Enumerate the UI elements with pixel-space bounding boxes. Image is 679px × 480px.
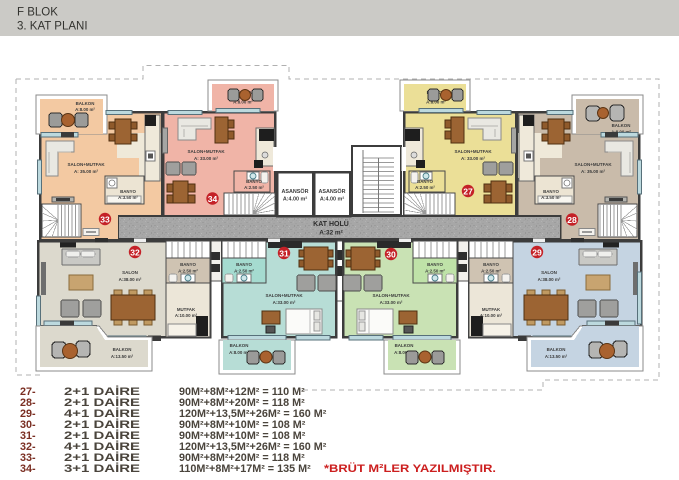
- svg-text:32: 32: [130, 248, 140, 258]
- svg-text:33: 33: [100, 215, 110, 225]
- svg-text:27: 27: [463, 187, 473, 197]
- svg-text:30: 30: [386, 250, 396, 260]
- svg-text:F BLOK: F BLOK: [17, 7, 58, 19]
- svg-text:*BRÜT M²LER YAZILMIŞTIR.: *BRÜT M²LER YAZILMIŞTIR.: [324, 462, 496, 475]
- svg-text:ASANSÖR: ASANSÖR: [319, 188, 346, 195]
- svg-text:BALKON: BALKON: [547, 347, 566, 352]
- svg-text:A:4.00 m²: A:4.00 m²: [320, 197, 344, 203]
- svg-text:A:38.00 m²: A:38.00 m²: [538, 277, 561, 282]
- svg-text:A:3.50 m²: A:3.50 m²: [118, 195, 138, 200]
- svg-text:A:8.00 m²: A:8.00 m²: [229, 350, 249, 355]
- svg-text:A:2.50 m²: A:2.50 m²: [244, 185, 264, 190]
- svg-text:BANYO: BANYO: [236, 262, 252, 267]
- svg-text:A:33.00 m²: A:33.00 m²: [380, 300, 403, 305]
- svg-text:SALON+MUTFAK: SALON+MUTFAK: [187, 149, 225, 154]
- svg-text:BANYO: BANYO: [246, 179, 262, 184]
- svg-text:A: 33.00 m²: A: 33.00 m²: [194, 156, 219, 161]
- svg-text:A:10.00 m²: A:10.00 m²: [175, 313, 198, 318]
- svg-text:BALKON: BALKON: [230, 343, 249, 348]
- svg-text:110M²+8M²+17M² = 135 M²: 110M²+8M²+17M² = 135 M²: [179, 463, 311, 475]
- svg-text:A:33.00 m²: A:33.00 m²: [273, 300, 296, 305]
- svg-text:SALON: SALON: [541, 270, 557, 275]
- svg-text:BANYO: BANYO: [543, 189, 559, 194]
- svg-text:34-: 34-: [20, 463, 36, 475]
- svg-text:MUTFAK: MUTFAK: [177, 307, 196, 312]
- svg-text:BANYO: BANYO: [120, 189, 136, 194]
- svg-text:A: 33.00 m²: A: 33.00 m²: [461, 156, 486, 161]
- svg-text:A:13.50 m²: A:13.50 m²: [111, 354, 134, 359]
- svg-text:A: 35.00 m²: A: 35.00 m²: [581, 169, 606, 174]
- svg-text:SALON+MUTFAK: SALON+MUTFAK: [574, 162, 612, 167]
- svg-text:SALON+MUTFAK: SALON+MUTFAK: [265, 293, 303, 298]
- svg-text:31: 31: [279, 249, 289, 259]
- svg-text:A:2.50 m²: A:2.50 m²: [415, 185, 435, 190]
- svg-text:A:32 m²: A:32 m²: [319, 230, 342, 237]
- svg-text:3+1 DAİRE: 3+1 DAİRE: [64, 462, 140, 475]
- svg-text:A:13.50 m²: A:13.50 m²: [545, 354, 568, 359]
- svg-text:A:3.50 m²: A:3.50 m²: [541, 195, 561, 200]
- svg-text:SALON: SALON: [122, 270, 138, 275]
- svg-text:ASANSÖR: ASANSÖR: [282, 188, 309, 195]
- svg-text:28: 28: [567, 215, 577, 225]
- svg-text:A:10.00 m²: A:10.00 m²: [480, 313, 503, 318]
- svg-text:SALON+MUTFAK: SALON+MUTFAK: [372, 293, 410, 298]
- svg-text:A:2.50 m²: A:2.50 m²: [425, 269, 445, 274]
- svg-text:BANYO: BANYO: [427, 262, 443, 267]
- svg-text:A: 35.00 m²: A: 35.00 m²: [74, 169, 99, 174]
- svg-text:BALKON: BALKON: [395, 343, 414, 348]
- svg-text:29: 29: [532, 248, 542, 258]
- svg-text:BALKON: BALKON: [612, 123, 631, 128]
- svg-text:A:2.50 m²: A:2.50 m²: [481, 269, 501, 274]
- svg-text:BANYO: BANYO: [417, 179, 433, 184]
- svg-text:MUTFAK: MUTFAK: [482, 307, 501, 312]
- svg-text:A:4.00 m²: A:4.00 m²: [283, 197, 307, 203]
- svg-text:KAT HOLÜ: KAT HOLÜ: [313, 219, 349, 228]
- svg-text:BALKON: BALKON: [113, 347, 132, 352]
- svg-text:3. KAT PLANI: 3. KAT PLANI: [17, 21, 88, 33]
- svg-text:SALON+MUTFAK: SALON+MUTFAK: [454, 149, 492, 154]
- svg-text:BALKON: BALKON: [76, 101, 95, 106]
- svg-text:34: 34: [208, 194, 218, 204]
- svg-text:SALON+MUTFAK: SALON+MUTFAK: [67, 162, 105, 167]
- svg-text:A:8.00 m²: A:8.00 m²: [75, 107, 95, 112]
- svg-text:BANYO: BANYO: [180, 262, 196, 267]
- svg-text:BANYO: BANYO: [483, 262, 499, 267]
- svg-text:A:2.50 m²: A:2.50 m²: [178, 269, 198, 274]
- svg-text:A:38.00 m²: A:38.00 m²: [119, 277, 142, 282]
- svg-text:A:2.50 m²: A:2.50 m²: [234, 269, 254, 274]
